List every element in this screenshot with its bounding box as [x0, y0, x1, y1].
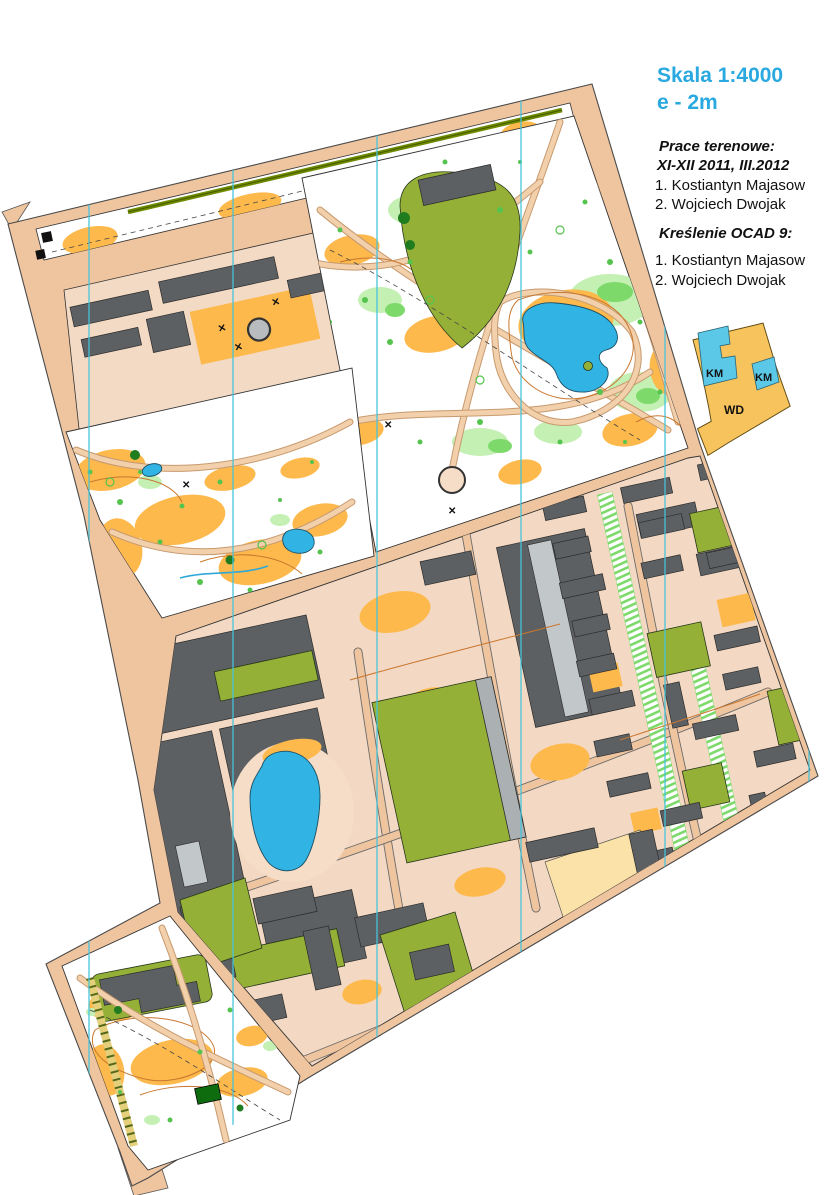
- coverage-label-wd: WD: [724, 403, 744, 417]
- map-page: ✕✕✕: [0, 0, 835, 1195]
- kiosk-symbol: [41, 231, 53, 243]
- small-pond: [283, 529, 315, 553]
- coverage-diagram: KM KM WD: [693, 323, 790, 455]
- contour-interval-label: e - 2m: [657, 91, 718, 114]
- fieldwork-period: XI-XII 2011, III.2012: [656, 157, 790, 174]
- svg-text:✕: ✕: [384, 420, 392, 431]
- drafting-author-2: 2. Wojciech Dwojak: [655, 272, 786, 289]
- orienteering-map: ✕✕✕: [0, 0, 835, 1195]
- fountain-circle: [439, 467, 465, 493]
- fieldwork-author-2: 2. Wojciech Dwojak: [655, 196, 786, 213]
- coverage-label-km-left: KM: [706, 368, 723, 380]
- drafting-author-1: 1. Kostiantyn Majasow: [655, 252, 805, 269]
- drafting-heading: Kreślenie OCAD 9:: [659, 225, 792, 242]
- legend-block: Skala 1:4000 e - 2m Prace terenowe: XI-X…: [655, 64, 805, 289]
- kiosk-symbol: [35, 249, 46, 260]
- fieldwork-heading: Prace terenowe:: [659, 138, 775, 155]
- coverage-label-km-right: KM: [755, 372, 772, 384]
- svg-text:✕: ✕: [448, 506, 456, 517]
- svg-text:✕: ✕: [182, 480, 190, 491]
- fieldwork-author-1: 1. Kostiantyn Majasow: [655, 177, 805, 194]
- scale-label: Skala 1:4000: [657, 64, 783, 87]
